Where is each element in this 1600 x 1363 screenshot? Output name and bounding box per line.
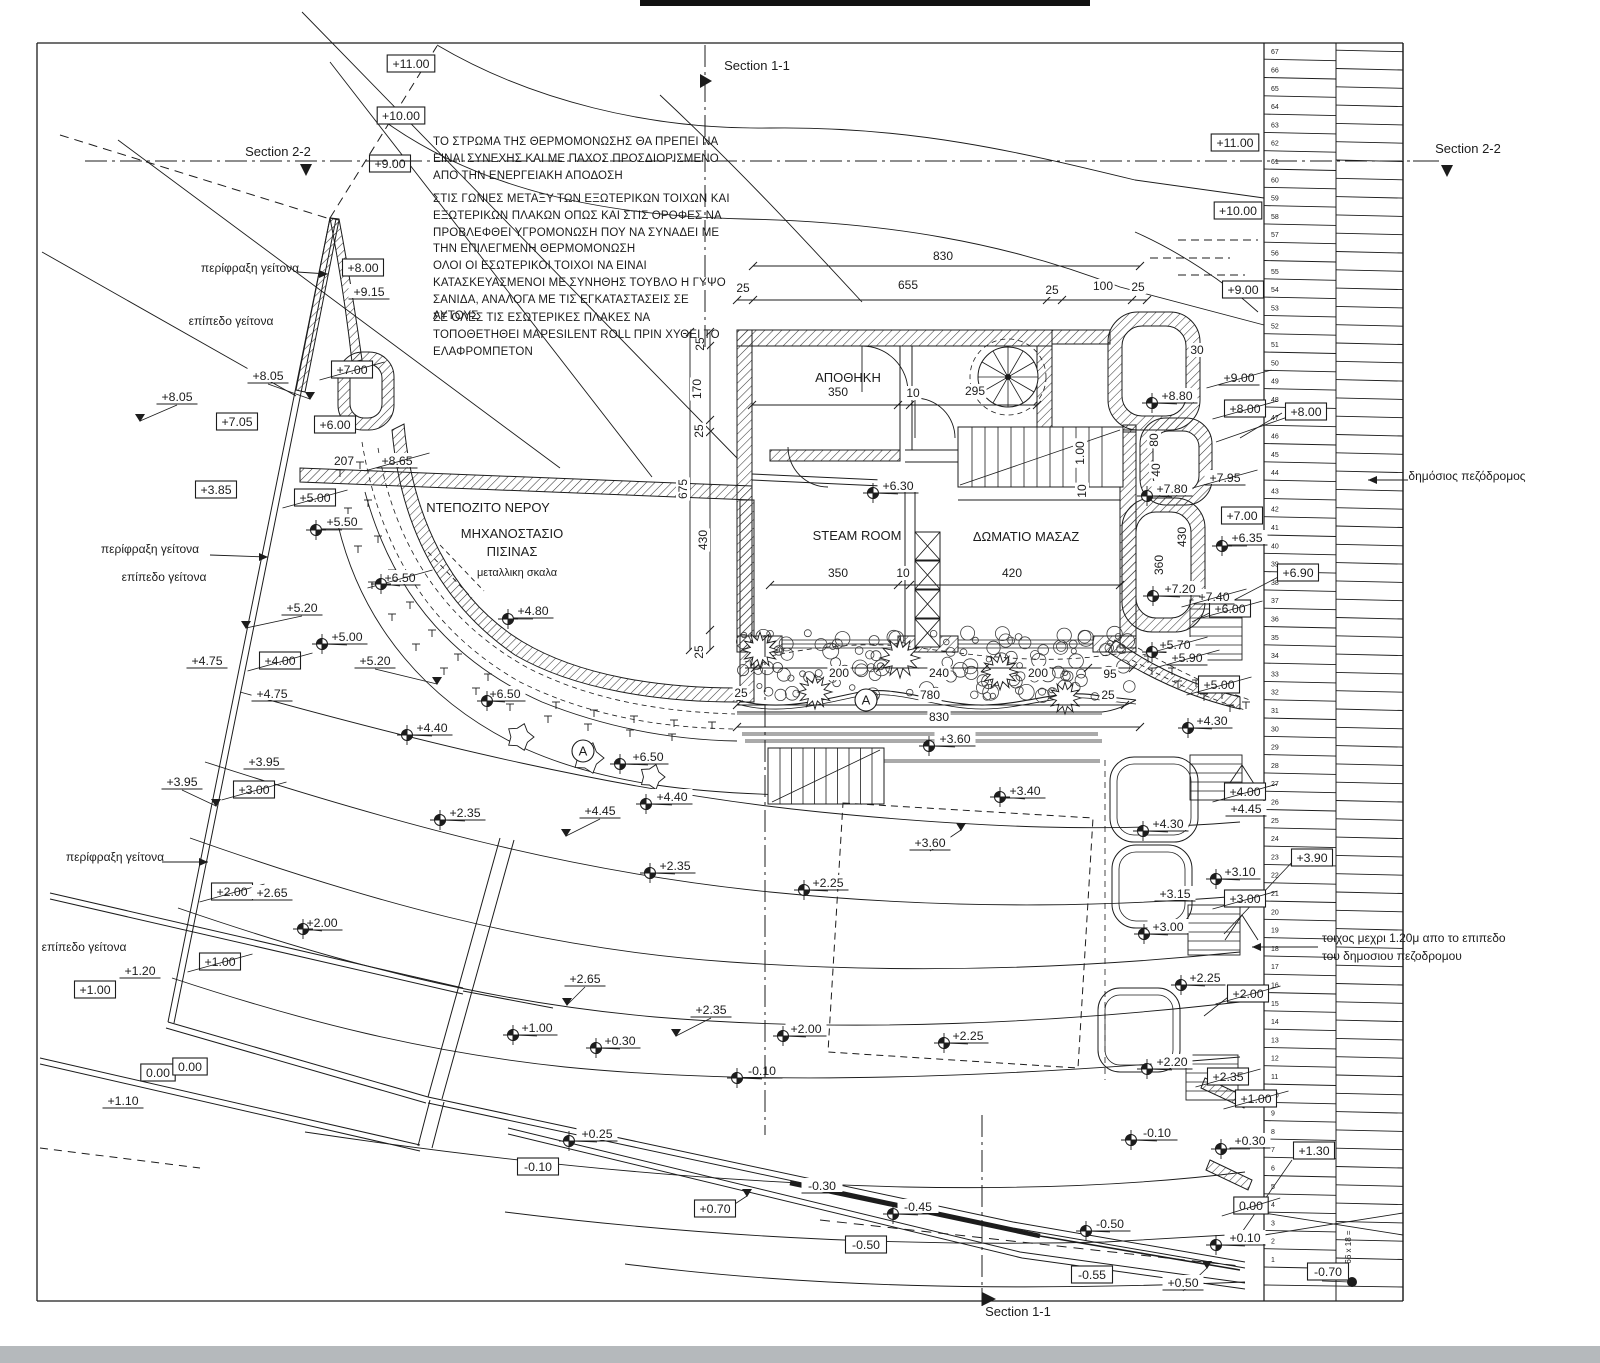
spot-elevation: +2.25 — [1171, 970, 1226, 995]
stair-step-number: 26 — [1271, 800, 1279, 807]
spot-elevation-value: +1.00 — [204, 955, 235, 969]
spot-elevation: +1.00 — [503, 1020, 558, 1045]
spot-elevation: +1.10 — [103, 1093, 144, 1108]
spot-elevation-value: +2.20 — [1156, 1055, 1187, 1069]
spot-elevation-value: +9.00 — [374, 157, 405, 171]
spot-elevation: +10.00 — [377, 107, 425, 124]
spot-elevation: -0.55 — [1072, 1266, 1113, 1283]
dimension-text: 10 — [1075, 484, 1089, 498]
spot-elevation-value: +4.45 — [584, 804, 615, 818]
dimension-text: 350 — [828, 385, 848, 399]
room-label: μεταλλικη σκαλα — [477, 567, 558, 579]
spot-elevation-value: +0.25 — [581, 1127, 612, 1141]
spot-elevation-value: +8.65 — [381, 454, 412, 468]
stair-step-number: 2 — [1271, 1239, 1275, 1246]
stair-step-number: 22 — [1271, 873, 1279, 880]
spot-elevation: +6.90 — [1278, 564, 1319, 581]
spot-elevation: +4.75 — [252, 686, 293, 701]
area-marker: A — [579, 744, 588, 759]
dimension-text: 655 — [898, 278, 918, 292]
room-label: ΠΙΣΙΝΑΣ — [487, 544, 538, 559]
spot-elevation-value: +0.30 — [1234, 1134, 1265, 1148]
spot-elevation: +9.15 — [349, 284, 390, 299]
spot-elevation-value: +0.70 — [699, 1202, 730, 1216]
stair-step-number: 45 — [1271, 452, 1279, 459]
area-marker: A — [862, 693, 871, 708]
dimension-text: 207 — [334, 454, 354, 468]
spot-elevation: +3.00 — [222, 781, 287, 800]
annotation-text: τοιχος μεχρι 1.20μ απο το επιπεδο — [1322, 931, 1506, 945]
spot-elevation-value: +8.05 — [161, 390, 192, 404]
spot-elevation: -0.10 — [518, 1158, 559, 1175]
stair-step-number: 42 — [1271, 507, 1279, 514]
annotation-text: επίπεδο γείτονα — [122, 570, 207, 584]
stair-step-number: 29 — [1271, 745, 1279, 752]
spot-elevation: +1.00 — [188, 953, 253, 972]
spot-elevation: +2.00 — [773, 1021, 827, 1046]
spot-elevation-value: +5.50 — [326, 515, 357, 529]
spot-elevation-value: -0.70 — [1314, 1265, 1342, 1279]
spot-elevation: +4.40 — [636, 789, 693, 814]
spot-elevation-value: +5.00 — [331, 630, 362, 644]
spot-elevation-value: +7.20 — [1164, 582, 1195, 596]
stair-step-number: 14 — [1271, 1019, 1279, 1026]
stair-step-number: 61 — [1271, 159, 1279, 166]
stair-step-number: 64 — [1271, 104, 1279, 111]
room-label: STEAM ROOM — [813, 528, 902, 543]
spot-elevation: +8.00 — [343, 259, 384, 276]
spot-elevation-value: +11.00 — [392, 57, 429, 71]
spot-elevation: +2.00 — [293, 915, 343, 939]
spot-elevation: +4.30 — [1178, 713, 1233, 738]
stair-step-number: 60 — [1271, 177, 1279, 184]
stair-step-number: 40 — [1271, 543, 1279, 550]
dimension-text: 200 — [829, 666, 849, 680]
spot-elevation: +3.85 — [196, 481, 237, 498]
stair-step-number: 41 — [1271, 525, 1279, 532]
spot-elevation: +7.05 — [217, 413, 258, 430]
spot-elevation-value: +3.00 — [1152, 920, 1183, 934]
thermal-insulation-note: ΤΟ ΣΤΡΩΜΑ ΤΗΣ ΘΕΡΜΟΜΟΝΩΣΗΣ ΘΑ ΠΡΕΠΕΙ ΝΑ … — [433, 134, 735, 184]
spot-elevation: +2.35 — [430, 805, 486, 830]
spot-elevation-value: +5.20 — [359, 654, 390, 668]
spot-elevation: +3.95 — [244, 754, 285, 769]
public-stair-strip: 1234567891011121314151617181920212223242… — [1264, 43, 1403, 1301]
dimension-text: 100 — [1093, 279, 1113, 293]
spot-elevation-value: +2.35 — [659, 859, 690, 873]
spot-elevation: +0.70 — [695, 1189, 753, 1217]
dimension-text: 780 — [920, 688, 940, 702]
spot-elevation-value: +1.20 — [124, 964, 155, 978]
spot-elevation-value: +8.00 — [1290, 405, 1321, 419]
stair-step-number: 65 — [1271, 86, 1279, 93]
spot-elevation-value: -0.55 — [1078, 1268, 1106, 1282]
spot-elevation: +4.75 — [187, 653, 228, 668]
stair-step-number: 25 — [1271, 818, 1279, 825]
spot-elevation: +3.15 — [1155, 886, 1196, 901]
spot-elevation: +6.30 — [863, 478, 919, 503]
spot-elevation: +2.35 — [671, 1002, 732, 1037]
site-plan-sheet: 8302565525100253501029535010420200240200… — [0, 0, 1600, 1363]
stair-step-number: 49 — [1271, 379, 1279, 386]
stair-step-number: 34 — [1271, 653, 1279, 660]
moisture-insulation-note: ΣΤΙΣ ΓΩΝΙΕΣ ΜΕΤΑΞΥ ΤΩΝ ΕΞΩΤΕΡΙΚΩΝ ΤΟΙΧΩΝ… — [433, 191, 735, 258]
stair-step-number: 20 — [1271, 909, 1279, 916]
stair-step-number: 37 — [1271, 598, 1279, 605]
stair-step-number: 67 — [1271, 49, 1279, 56]
spot-elevation-value: 0.00 — [146, 1066, 170, 1080]
spot-elevation-value: +3.00 — [238, 783, 269, 797]
spot-elevation-value: +6.00 — [319, 418, 350, 432]
spot-elevation-value: +2.25 — [952, 1029, 983, 1043]
annotation-text: επίπεδο γείτονα — [189, 314, 274, 328]
dimension-text: 830 — [933, 249, 953, 263]
stair-step-number: 32 — [1271, 690, 1279, 697]
dimension-text: 360 — [1152, 555, 1166, 575]
spot-elevation: -0.50 — [846, 1236, 887, 1253]
section-1-1-bottom-label: Section 1-1 — [985, 1304, 1051, 1319]
stair-step-number: 36 — [1271, 617, 1279, 624]
spot-elevation: +3.00 — [1134, 919, 1189, 944]
spot-elevation: +2.35 — [1196, 1068, 1261, 1087]
spot-elevation-value: +6.30 — [882, 479, 913, 493]
spot-elevation: +2.65 — [252, 885, 293, 900]
spot-elevation: +0.30 — [1211, 1133, 1271, 1159]
annotation-text: του δημοσιου πεζοδρομου — [1322, 949, 1462, 963]
stair-step-number: 53 — [1271, 305, 1279, 312]
stair-step-number: 55 — [1271, 269, 1279, 276]
spot-elevation-value: 0.00 — [178, 1060, 202, 1074]
spot-elevation-value: +7.40 — [1198, 590, 1229, 604]
spot-elevation: 0.00 — [173, 1058, 207, 1075]
spot-elevation: +2.25 — [934, 1028, 989, 1053]
spot-elevation-value: +7.05 — [221, 415, 252, 429]
spot-elevation: +9.00 — [370, 155, 411, 172]
spot-elevation: +3.90 — [1292, 849, 1333, 866]
stair-step-number: 46 — [1271, 434, 1279, 441]
room-label: ΝΤΕΠΟΖΙΤΟ ΝΕΡΟΥ — [426, 500, 550, 515]
spot-elevation-value: +3.15 — [1159, 887, 1190, 901]
dimension-text: 25 — [1131, 280, 1145, 294]
dimension-text: 350 — [828, 566, 848, 580]
stair-step-number: 56 — [1271, 251, 1279, 258]
spot-elevation-value: +1.00 — [1240, 1092, 1271, 1106]
room-label: ΜΗΧΑΝΟΣΤΑΣΙΟ — [461, 526, 564, 541]
annotation-text: επίπεδο γείτονα — [42, 940, 127, 954]
spot-elevation: +1.30 — [1294, 1142, 1335, 1159]
dimension-text: 25 — [1045, 283, 1059, 297]
spot-elevation: +3.60 — [910, 823, 967, 851]
spot-elevation-value: 0.00 — [1239, 1199, 1263, 1213]
spot-elevation: +1.20 — [120, 963, 161, 978]
spot-elevation-value: +2.65 — [569, 972, 600, 986]
spot-elevation: +8.00 — [1286, 403, 1327, 420]
room-label: ΑΠΟΘΗΚΗ — [815, 370, 881, 385]
spot-elevation: +5.20 — [241, 600, 323, 629]
spot-elevation-value: +2.35 — [1212, 1070, 1243, 1084]
stair-step-number: 59 — [1271, 196, 1279, 203]
stair-step-number: 23 — [1271, 854, 1279, 861]
spot-elevation: +5.00 — [283, 489, 348, 508]
stair-step-number: 11 — [1271, 1074, 1278, 1081]
spot-elevation-value: +9.00 — [1227, 283, 1258, 297]
spot-elevation-value: +6.90 — [1282, 566, 1313, 580]
stair-step-number: 63 — [1271, 122, 1279, 129]
spot-elevation: +9.00 — [1223, 281, 1264, 298]
dimension-text: 675 — [676, 479, 690, 499]
spot-elevation-value: +2.25 — [1189, 971, 1220, 985]
dimension-text: 25 — [1101, 688, 1115, 702]
annotation-text: περίφραξη γείτονα — [66, 850, 164, 864]
spot-elevation-value: +3.60 — [939, 732, 970, 746]
annotation-text: περίφραξη γείτονα — [101, 542, 199, 556]
dimension-text: 25 — [736, 281, 750, 295]
spot-elevation-value: +3.40 — [1009, 784, 1040, 798]
dimension-text: 25 — [734, 686, 748, 700]
spot-elevation: +1.00 — [75, 981, 116, 998]
dimension-text: 10 — [906, 386, 920, 400]
dimension-text: 200 — [1028, 666, 1048, 680]
spot-elevation: +8.00 — [1213, 400, 1278, 419]
spot-elevation-value: +2.35 — [449, 806, 480, 820]
scan-artifacts — [0, 0, 1600, 1363]
spot-elevation: -0.10 — [727, 1063, 783, 1088]
spot-elevation-value: -0.10 — [1143, 1126, 1171, 1140]
spot-elevation-value: +7.00 — [1226, 509, 1257, 523]
spot-elevation-value: +4.75 — [256, 687, 287, 701]
dimension-text: 420 — [1002, 566, 1022, 580]
spot-elevation-value: +10.00 — [1219, 204, 1257, 218]
spot-elevation: +2.20 — [1137, 1054, 1193, 1079]
stair-step-number: 30 — [1271, 726, 1279, 733]
stair-step-number: 66 — [1271, 68, 1279, 75]
stair-step-number: 5 — [1271, 1184, 1275, 1191]
spot-elevation: +5.20 — [355, 653, 443, 685]
spot-elevation-value: +2.00 — [1232, 987, 1263, 1001]
stair-step-number: 54 — [1271, 287, 1279, 294]
spot-elevation: +3.00 — [1213, 890, 1278, 909]
stair-step-number: 9 — [1271, 1111, 1275, 1118]
spot-elevation-value: -0.50 — [1096, 1217, 1124, 1231]
spot-elevation-value: +7.00 — [336, 363, 367, 377]
stair-step-number: 31 — [1271, 708, 1279, 715]
stair-step-number: 47 — [1271, 415, 1279, 422]
stair-step-number: 43 — [1271, 488, 1279, 495]
spot-elevation-value: +7.80 — [1156, 482, 1187, 496]
dimension-text: 80 — [1147, 433, 1161, 447]
dimension-text: 25 — [692, 645, 706, 659]
spot-elevation: +11.00 — [1211, 134, 1259, 151]
spot-elevation-value: +4.75 — [191, 654, 222, 668]
stair-step-number: 13 — [1271, 1037, 1279, 1044]
spot-elevation: +4.00 — [1213, 783, 1278, 802]
spot-elevation: -0.70 — [1308, 1263, 1349, 1280]
spot-elevation-value: +10.00 — [382, 109, 420, 123]
spot-elevation: +4.45 — [561, 803, 621, 837]
spot-elevation-value: +2.65 — [256, 886, 287, 900]
spot-elevation: +6.00 — [315, 416, 356, 433]
spot-elevation: +4.45 — [1226, 801, 1267, 816]
spot-elevation-value: +3.00 — [1229, 892, 1260, 906]
spot-elevation: -0.10 — [1121, 1125, 1178, 1150]
stair-step-number: 1 — [1271, 1257, 1275, 1264]
spot-elevation: +3.10 — [1206, 864, 1261, 889]
spot-elevation-value: +4.00 — [1229, 785, 1260, 799]
dimension-text: 25 — [692, 424, 706, 438]
stair-step-number: 57 — [1271, 232, 1279, 239]
stair-step-number: 44 — [1271, 470, 1279, 477]
dimension-text: 830 — [929, 710, 949, 724]
stair-step-number: 62 — [1271, 141, 1279, 148]
spot-elevation-value: +0.50 — [1167, 1276, 1198, 1290]
stair-step-number: 8 — [1271, 1129, 1275, 1136]
dimension-text: 170 — [690, 379, 704, 399]
stair-step-number: 12 — [1271, 1056, 1279, 1063]
spot-elevation-value: +4.40 — [416, 721, 447, 735]
spot-elevation-value: +4.30 — [1152, 817, 1183, 831]
stair-step-number: 4 — [1271, 1202, 1275, 1209]
spot-elevation-value: +9.00 — [1223, 371, 1254, 385]
dimension-text: 95 — [1103, 667, 1117, 681]
spot-elevation-value: +2.00 — [306, 916, 337, 930]
spot-elevation-value: +5.90 — [1171, 651, 1202, 665]
spot-elevation-value: +1.00 — [79, 983, 110, 997]
spot-elevation: +4.00 — [248, 652, 313, 671]
stair-step-number: 50 — [1271, 360, 1279, 367]
stair-step-number: 15 — [1271, 1001, 1279, 1008]
section-2-2-right-label: Section 2-2 — [1435, 141, 1501, 156]
spot-elevation-value: +0.10 — [1229, 1231, 1260, 1245]
dimension-text: 10 — [896, 566, 910, 580]
spot-elevation-value: +8.80 — [1161, 389, 1192, 403]
spot-elevation: +5.50 — [306, 514, 363, 540]
spot-elevation: +11.00 — [387, 55, 435, 72]
mapesilent-note: ΣΕ ΟΛΕΣ ΤΙΣ ΕΣΩΤΕΡΙΚΕΣ ΠΛΑΚΕΣ ΝΑ ΤΟΠΟΘΕΤ… — [433, 310, 735, 360]
spot-elevation-value: +1.10 — [107, 1094, 138, 1108]
spot-elevation-value: +3.85 — [200, 483, 231, 497]
spot-elevation-value: +2.00 — [790, 1022, 821, 1036]
spot-elevation-value: +5.70 — [1159, 638, 1190, 652]
section-1-1-top-label: Section 1-1 — [724, 58, 790, 73]
spot-elevation: +8.05 — [135, 389, 198, 422]
spot-elevation-value: +0.30 — [604, 1034, 635, 1048]
spot-elevation: +6.35 — [1212, 530, 1268, 556]
spot-elevation-value: +11.00 — [1216, 136, 1253, 150]
stair-step-number: 7 — [1271, 1147, 1275, 1154]
spot-elevation-value: +3.60 — [914, 836, 945, 850]
spot-elevation-value: +9.15 — [353, 285, 384, 299]
dimension-text: 430 — [1175, 527, 1189, 547]
spot-elevation-value: +4.40 — [656, 790, 687, 804]
spot-elevation-value: +3.90 — [1296, 851, 1327, 865]
spot-elevation: +7.00 — [1222, 507, 1263, 524]
spot-elevation-value: -0.10 — [524, 1160, 552, 1174]
spot-elevation: +3.40 — [990, 783, 1046, 807]
spot-elevation-value: +4.00 — [264, 654, 295, 668]
stair-step-number: 35 — [1271, 635, 1279, 642]
spot-elevation: +4.80 — [498, 603, 554, 629]
stair-step-number: 28 — [1271, 763, 1279, 770]
section-2-2-left-label: Section 2-2 — [245, 144, 311, 159]
spot-elevation-value: +5.20 — [286, 601, 317, 615]
spot-elevation-value: +4.30 — [1196, 714, 1227, 728]
stair-step-number: 3 — [1271, 1220, 1275, 1227]
spot-elevation-value: -0.10 — [748, 1064, 776, 1078]
spot-elevation-value: +3.95 — [248, 755, 279, 769]
site-plan-drawing: 8302565525100253501029535010420200240200… — [0, 0, 1600, 1363]
stair-step-number: 58 — [1271, 214, 1279, 221]
spot-elevation: +0.10 — [1206, 1230, 1266, 1255]
spot-elevation-value: +1.30 — [1298, 1144, 1329, 1158]
spot-elevation: +6.50 — [368, 570, 433, 594]
spot-elevation: +0.30 — [586, 1033, 641, 1058]
spot-elevation-value: +5.00 — [299, 491, 330, 505]
stair-step-number: 17 — [1271, 964, 1279, 971]
spot-elevation: +10.00 — [1214, 202, 1262, 219]
spot-elevation-value: +6.50 — [632, 750, 663, 764]
stair-step-number: 33 — [1271, 671, 1279, 678]
spot-elevation: +9.00 — [1207, 370, 1272, 388]
spot-elevation: +2.65 — [562, 971, 606, 1006]
room-label: ΔΩΜΑΤΙΟ ΜΑΣΑΖ — [973, 529, 1079, 544]
spot-elevation: +6.50 — [477, 686, 526, 711]
riser-calculation: 66 x 18 = — [1344, 1230, 1353, 1263]
stair-step-number: 51 — [1271, 342, 1279, 349]
dimension-text: 30 — [1190, 343, 1204, 357]
spot-elevation: +5.00 — [312, 629, 368, 654]
dimension-text: 430 — [696, 530, 710, 550]
spot-elevation-value: -0.30 — [808, 1179, 836, 1193]
spot-elevation-value: +1.00 — [521, 1021, 552, 1035]
spot-elevation-value: +8.00 — [347, 261, 378, 275]
spot-elevation: -0.30 — [802, 1178, 843, 1193]
dimension-text: 1.00 — [1073, 441, 1087, 465]
stair-step-number: 19 — [1271, 928, 1279, 935]
spot-elevation-value: +2.25 — [812, 876, 843, 890]
spot-elevation-value: +2.35 — [695, 1003, 726, 1017]
dimension-text: 240 — [929, 666, 949, 680]
stair-step-number: 6 — [1271, 1166, 1275, 1173]
stair-step-number: 24 — [1271, 836, 1279, 843]
spot-elevation: +4.30 — [1133, 816, 1189, 841]
spot-elevation: +4.40 — [397, 720, 453, 745]
spot-elevation-value: +4.45 — [1230, 802, 1261, 816]
spot-elevation-value: +3.95 — [166, 775, 197, 789]
spot-elevation-value: +6.50 — [384, 571, 415, 585]
spot-elevation-value: +7.95 — [1209, 471, 1240, 485]
spot-elevation-value: +6.50 — [489, 687, 520, 701]
spot-elevation: +0.50 — [1163, 1261, 1213, 1291]
spot-elevation-value: +6.35 — [1231, 531, 1262, 545]
spot-elevation-value: -0.45 — [904, 1200, 932, 1214]
annotation-text: περίφραξη γείτονα — [201, 261, 299, 275]
spot-elevation-value: +8.00 — [1229, 402, 1260, 416]
spot-elevation: 0.00 — [141, 1064, 175, 1081]
spot-elevation-value: -0.50 — [852, 1238, 880, 1252]
spot-elevation-value: +2.00 — [216, 885, 247, 899]
dimension-text: 40 — [1149, 463, 1163, 477]
annotation-text: δημόσιος πεζόδρομος — [1408, 469, 1525, 483]
spot-elevation-value: +4.80 — [517, 604, 548, 618]
spot-elevation: +6.50 — [610, 749, 669, 774]
spot-elevation: +8.65 — [365, 453, 430, 471]
spot-elevation-value: +8.05 — [252, 369, 283, 383]
stair-step-number: 52 — [1271, 324, 1279, 331]
dimension-text: 295 — [965, 384, 985, 398]
spot-elevation-value: +5.00 — [1203, 678, 1234, 692]
spot-elevation-value: +3.10 — [1224, 865, 1255, 879]
